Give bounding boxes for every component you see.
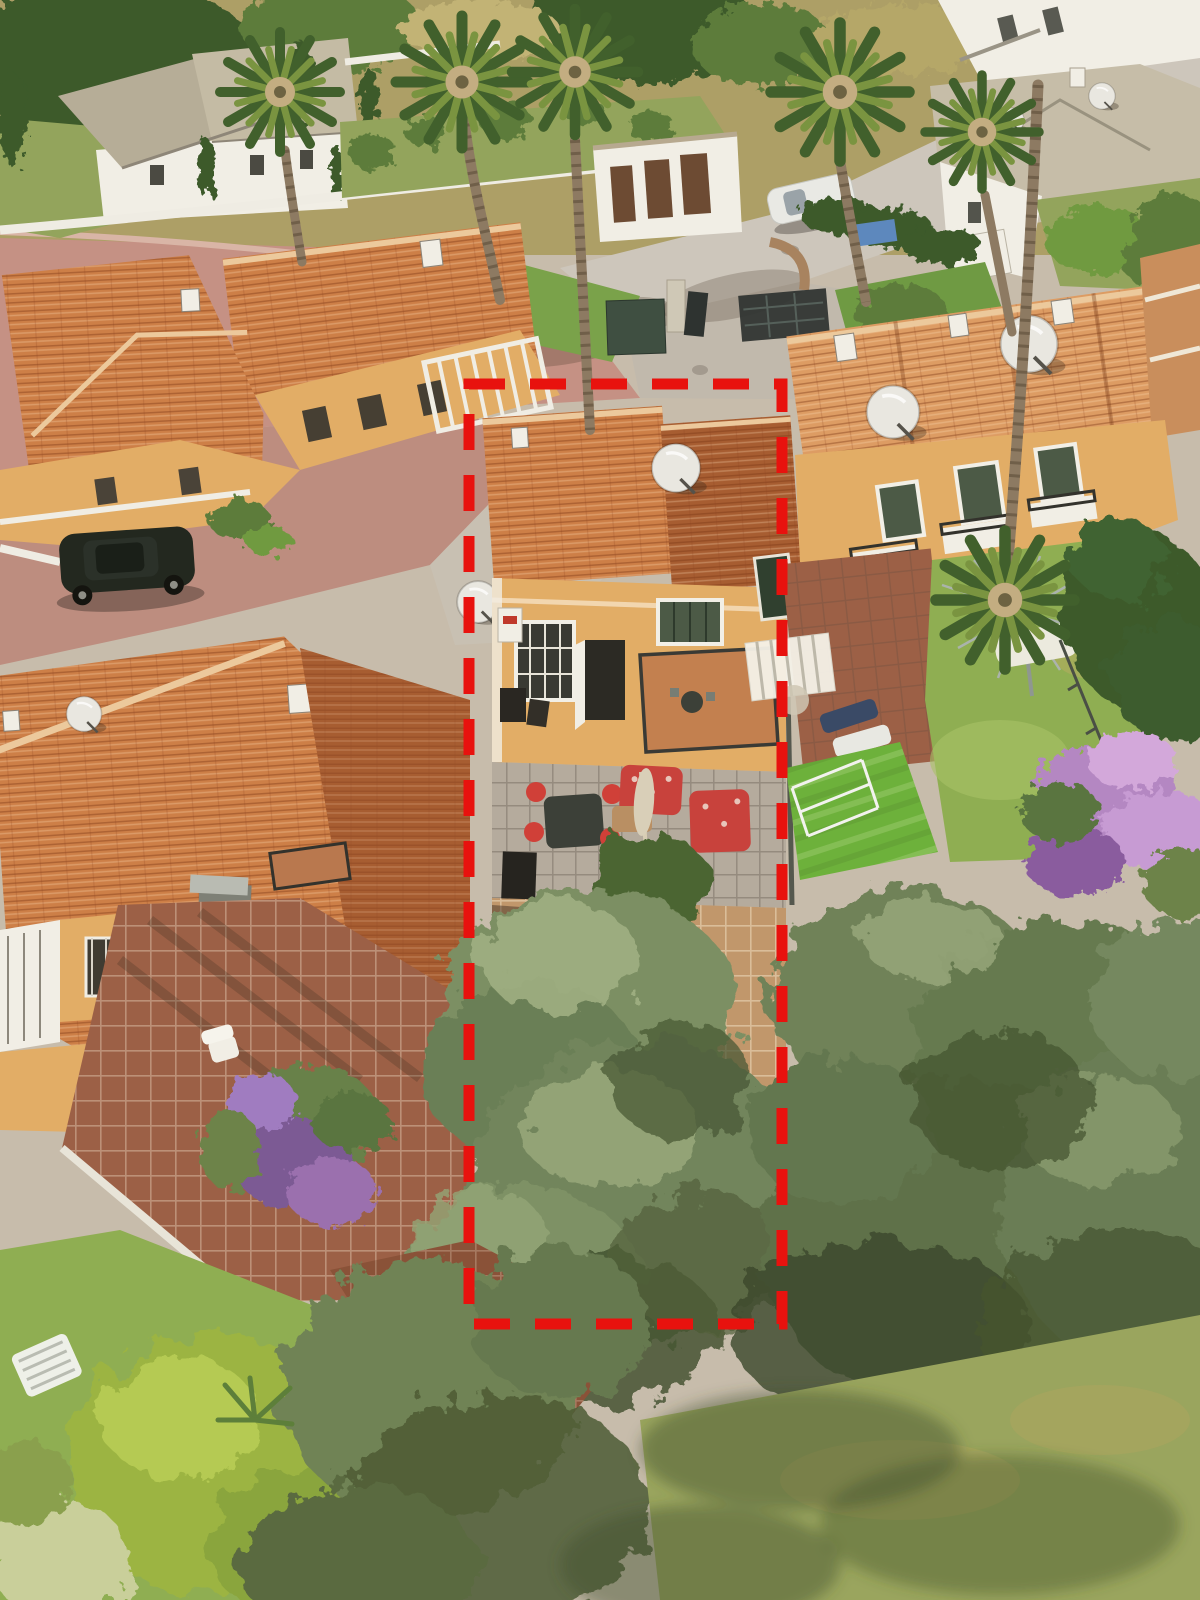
black-suv bbox=[52, 525, 205, 616]
garage-door bbox=[680, 153, 711, 215]
garage-door bbox=[644, 159, 673, 219]
red-sofa bbox=[689, 789, 751, 853]
garage-door bbox=[610, 165, 636, 222]
open-door bbox=[585, 640, 625, 720]
aerial-photo bbox=[0, 0, 1200, 1600]
dining-table bbox=[543, 793, 604, 849]
sign-board bbox=[498, 608, 522, 642]
entrance-pillar bbox=[667, 280, 685, 332]
aerial-photo-stage bbox=[0, 0, 1200, 1600]
bbq-grill bbox=[501, 851, 537, 900]
